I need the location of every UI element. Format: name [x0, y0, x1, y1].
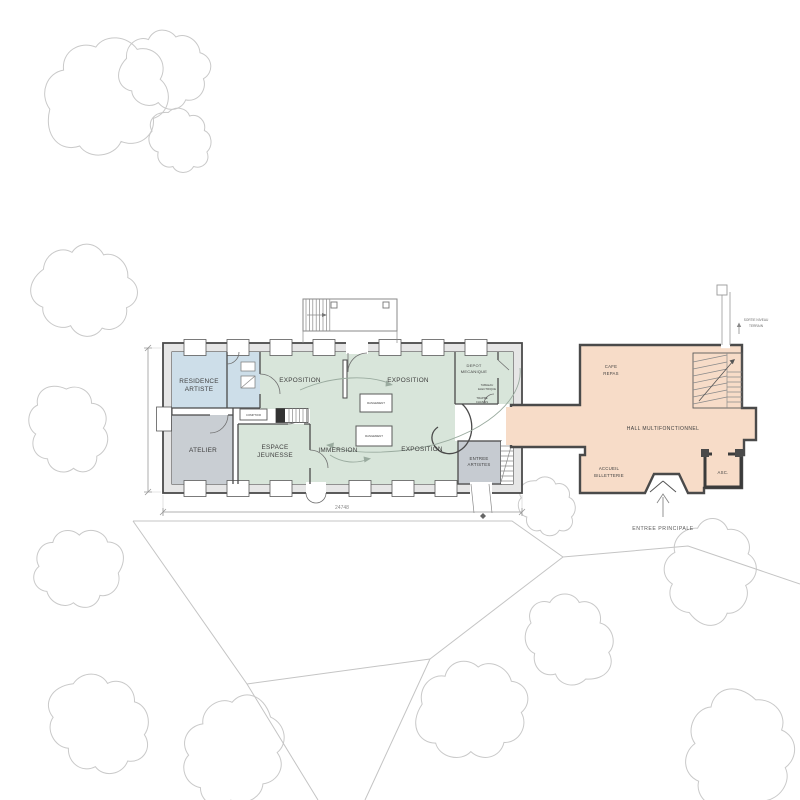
label-trappe: CHASSIS: [476, 400, 488, 404]
room-label-exposition: EXPOSITION: [279, 377, 321, 384]
entrance-label: ENTREE PRINCIPALE: [632, 526, 693, 532]
room-label-depot: MECANIQUE: [461, 369, 488, 374]
corridor-opening: [506, 407, 524, 445]
room-label-espace-jeunesse: JEUNESSE: [257, 452, 293, 459]
room-label-entree-artistes: ARTISTES: [468, 462, 491, 467]
room-label-asc: ASC.: [717, 470, 728, 475]
display-wall-stub: [343, 360, 347, 398]
room-label-accueil: ACCUEIL: [599, 466, 620, 471]
room-label-residence: RESIDENCE: [179, 378, 219, 385]
storage-label: RANGEMENT: [365, 434, 383, 438]
exit-label: TERRAIN: [749, 324, 764, 328]
bottom-door-gap: [306, 482, 326, 494]
counter-label: COMPTOIR: [246, 413, 261, 417]
elevator: ASC.: [701, 449, 743, 487]
room-label-exposition: EXPOSITION: [401, 446, 443, 453]
room-label-depot: DEPOT: [466, 363, 481, 368]
room-label-exposition: EXPOSITION: [387, 377, 429, 384]
post-icon: [701, 449, 709, 457]
floor-plan-drawing: COMPTOIR RANGEMENT RANGEMENT: [0, 0, 800, 800]
post-icon: [735, 449, 743, 457]
exit-label: SORTIE NIVEAU: [744, 318, 769, 322]
label-tableau-electrique: ELECTRIQUE: [478, 387, 496, 391]
passage: [455, 404, 513, 441]
room-label-cafe: CAFE: [605, 364, 617, 369]
floor-plan-canvas: COMPTOIR RANGEMENT RANGEMENT: [0, 0, 800, 800]
room-label-hall: HALL MULTIFONCTIONNEL: [627, 426, 700, 432]
elevator-door-gap: [712, 451, 728, 457]
top-door-gap: [346, 341, 368, 354]
room-label-atelier: ATELIER: [189, 447, 217, 454]
room-label-cafe: REPAS: [603, 371, 619, 376]
room-label-espace-jeunesse: ESPACE: [262, 444, 289, 451]
artist-door-gap: [470, 482, 492, 494]
room-label-accueil: BILLETTERIE: [594, 473, 624, 478]
storage-label: RANGEMENT: [367, 401, 385, 405]
room-label-immersion: IMMERSION: [318, 447, 357, 454]
central-stair: [276, 409, 308, 423]
room-label-entree-artistes: ENTREE: [470, 456, 489, 461]
room-label-residence: ARTISTE: [185, 386, 214, 393]
exit-landing: [717, 285, 727, 295]
dimension-length: 24748: [335, 505, 349, 511]
counter: COMPTOIR: [240, 409, 267, 420]
